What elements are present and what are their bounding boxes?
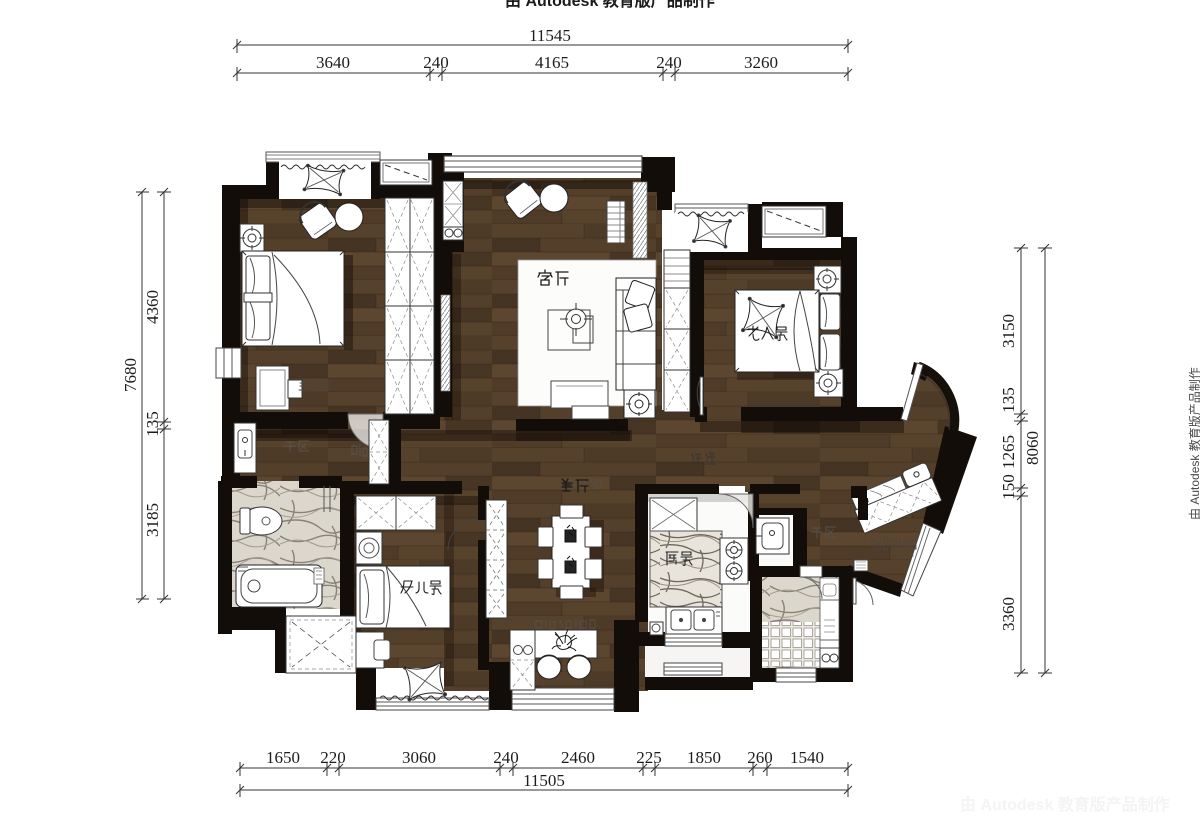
svg-text:11545: 11545 — [529, 26, 571, 45]
svg-text:3150: 3150 — [999, 314, 1018, 348]
svg-text:由 Autodesk 教育版产品制作: 由 Autodesk 教育版产品制作 — [1187, 367, 1200, 520]
svg-text:3360: 3360 — [999, 597, 1018, 631]
svg-text:3260: 3260 — [744, 53, 778, 72]
svg-text:150: 150 — [999, 474, 1018, 500]
svg-text:1265: 1265 — [999, 435, 1018, 469]
svg-text:4165: 4165 — [535, 53, 569, 72]
svg-text:3640: 3640 — [316, 53, 350, 72]
svg-text:由 Autodesk 教育版产品制作: 由 Autodesk 教育版产品制作 — [960, 795, 1170, 814]
svg-text:8060: 8060 — [1023, 431, 1042, 465]
svg-text:220: 220 — [320, 748, 346, 767]
svg-text:11505: 11505 — [523, 771, 565, 790]
svg-text:1650: 1650 — [266, 748, 300, 767]
svg-text:135: 135 — [143, 411, 162, 437]
svg-text:3185: 3185 — [143, 503, 162, 537]
svg-text:240: 240 — [423, 53, 449, 72]
svg-text:1850: 1850 — [687, 748, 721, 767]
svg-text:225: 225 — [636, 748, 662, 767]
svg-text:4360: 4360 — [143, 290, 162, 324]
svg-text:240: 240 — [493, 748, 519, 767]
svg-text:7680: 7680 — [121, 358, 140, 392]
svg-text:260: 260 — [747, 748, 773, 767]
svg-text:240: 240 — [656, 53, 682, 72]
svg-text:由 Autodesk 教育版产品制作: 由 Autodesk 教育版产品制作 — [505, 0, 715, 10]
svg-text:135: 135 — [999, 387, 1018, 413]
svg-text:2460: 2460 — [561, 748, 595, 767]
svg-text:1540: 1540 — [790, 748, 824, 767]
svg-text:3060: 3060 — [402, 748, 436, 767]
